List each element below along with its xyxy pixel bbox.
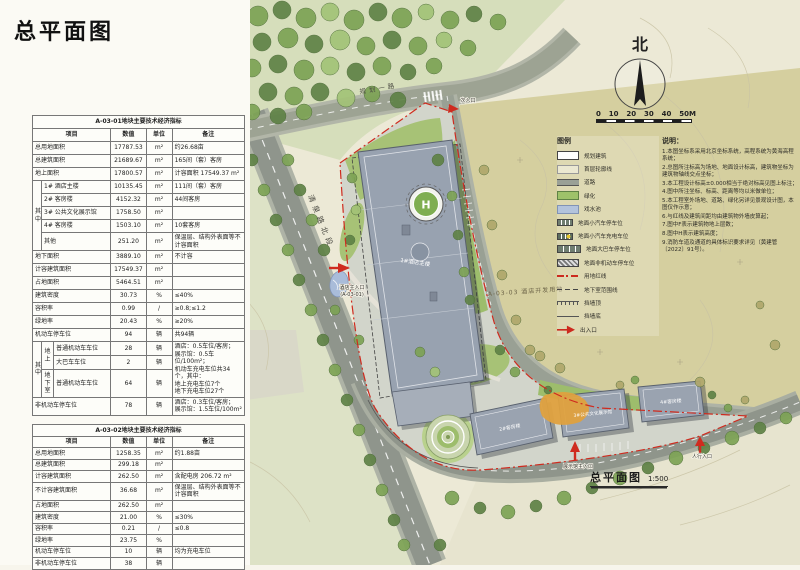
table-cell bbox=[172, 558, 244, 570]
table-cell: 非机动车停车位 bbox=[33, 558, 111, 570]
legend-title: 图例 bbox=[557, 136, 659, 146]
table-cell: 机动车停车位 bbox=[33, 546, 111, 558]
table-row: 机动车停车位94辆共94辆 bbox=[33, 329, 245, 342]
table-row: A-03-01地块主要技术经济指标 bbox=[33, 116, 245, 129]
column-header: 项目 bbox=[33, 436, 111, 448]
west-grey-patch bbox=[246, 330, 304, 400]
table-title: A-03-02地块主要技术经济指标 bbox=[33, 425, 245, 437]
table-cell: 28 bbox=[111, 342, 146, 356]
table-cell: 不计容建筑面积 bbox=[33, 482, 111, 500]
entrance-label-main: 酒店主入口 bbox=[339, 284, 364, 291]
table-cell: 普通机动车车位 bbox=[54, 370, 111, 398]
table-cell: 计容面积 17549.37 m² bbox=[172, 168, 244, 181]
scale-tick: 20 bbox=[626, 110, 636, 118]
table-cell: 262.50 bbox=[111, 471, 146, 483]
legend-swatch-outline bbox=[557, 165, 579, 174]
table-cell: 建筑密度 bbox=[33, 290, 111, 303]
table-cell: 约1.88亩 bbox=[172, 448, 244, 460]
table-cell: 辆 bbox=[146, 356, 172, 370]
legend-label: 首层轮廓线 bbox=[584, 165, 612, 173]
north-label: 北 bbox=[632, 35, 648, 54]
table-cell: 计容建筑面积 bbox=[33, 471, 111, 483]
table-cell: 78 bbox=[111, 397, 146, 415]
table-row: 建筑密度21.00%≤30% bbox=[33, 512, 245, 524]
column-header: 单位 bbox=[146, 129, 172, 142]
legend-item: 挡墙底 bbox=[557, 310, 659, 323]
entrance-label-side: 次入口 bbox=[460, 97, 475, 104]
legend-swatch-entry bbox=[557, 325, 575, 335]
entrance-label-ped: 人行入口 bbox=[692, 453, 712, 460]
helipad-mark: H bbox=[421, 199, 430, 212]
note-line: 6.与红线及建筑间距均由建筑物外墙皮算起； bbox=[662, 214, 798, 221]
note-line: 8.图中H表示建筑高度； bbox=[662, 231, 798, 238]
legend-label: 地面大巴车停车位 bbox=[586, 245, 631, 253]
table-cell: 251.20 bbox=[111, 233, 146, 251]
table-row: 4# 客房楼1503.10m²10套客房 bbox=[33, 220, 245, 233]
column-header: 数值 bbox=[111, 436, 146, 448]
table-cell: 酒店：0.5车位/客房； 展示馆：0.5车位/100m²； 机动车充电车位共34… bbox=[172, 342, 244, 398]
table-row: 容积率0.99/≥0.8;≤1.2 bbox=[33, 303, 245, 316]
table-row: 总用地面积17787.53m²约26.68亩 bbox=[33, 142, 245, 155]
table-cell: 大巴车车位 bbox=[54, 356, 111, 370]
table-cell: 辆 bbox=[146, 329, 172, 342]
table-cell: 绿地率 bbox=[33, 535, 111, 547]
table-cell: 容积率 bbox=[33, 303, 111, 316]
legend-label: 用地红线 bbox=[584, 272, 606, 280]
table-cell: m² bbox=[146, 459, 172, 471]
table-cell: 0.99 bbox=[111, 303, 146, 316]
legend-item: 首层轮廓线 bbox=[557, 162, 659, 175]
table-cell: 4# 客房楼 bbox=[42, 220, 111, 233]
legend-swatch-redline bbox=[557, 275, 579, 277]
table-cell: m² bbox=[146, 471, 172, 483]
legend-label: 地面非机动车停车位 bbox=[584, 259, 634, 267]
table-cell: 2 bbox=[111, 356, 146, 370]
table-cell: % bbox=[146, 290, 172, 303]
table-cell: ≤30% bbox=[172, 512, 244, 524]
table-cell: 辆 bbox=[146, 370, 172, 398]
table-cell: 其中 bbox=[33, 181, 42, 251]
legend-swatch-nonmotor bbox=[557, 259, 579, 267]
table-cell: 计容建筑面积 bbox=[33, 264, 111, 277]
table-row: 容积率0.21/≤0.8 bbox=[33, 523, 245, 535]
table-cell: 酒店：0.3车位/客房； 展示馆：1.5车位/100m² bbox=[172, 397, 244, 415]
table-cell: 其中 bbox=[33, 342, 42, 398]
legend-swatch-green bbox=[557, 191, 579, 200]
table-cell: m² bbox=[146, 251, 172, 264]
table-cell: m² bbox=[146, 168, 172, 181]
table-cell: 地下室 bbox=[42, 370, 54, 398]
legend-swatch-basement bbox=[557, 289, 579, 291]
legend-label: 地面小汽车充电车位 bbox=[578, 232, 628, 240]
note-line: 9.消防车道及通道的具体标识要求详见（黄建管〔2022〕91号）。 bbox=[662, 240, 798, 254]
scale-tick: 40 bbox=[662, 110, 672, 118]
table-cell: 10 bbox=[111, 546, 146, 558]
entrance-label-main-tag: (A-03-01) bbox=[340, 292, 364, 298]
table-row: A-03-02地块主要技术经济指标 bbox=[33, 425, 245, 437]
entrance-label-exhibit: 展示馆主入口 bbox=[563, 463, 593, 470]
table-cell: 总建筑面积 bbox=[33, 155, 111, 168]
table-cell bbox=[172, 207, 244, 220]
plan-title-block: 总平面图1:500 bbox=[590, 466, 668, 487]
table-cell: 21.00 bbox=[111, 512, 146, 524]
legend-swatch-charge bbox=[557, 233, 573, 240]
table-cell: 普通机动车车位 bbox=[54, 342, 111, 356]
table-row: 计容建筑面积17549.37m² bbox=[33, 264, 245, 277]
table-cell: 总用地面积 bbox=[33, 142, 111, 155]
table-row: 非机动车停车位78辆酒店：0.3车位/客房； 展示馆：1.5车位/100m² bbox=[33, 397, 245, 415]
table-cell: m² bbox=[146, 264, 172, 277]
legend-swatch-building bbox=[557, 151, 579, 160]
column-header: 单位 bbox=[146, 436, 172, 448]
table-cell: m² bbox=[146, 220, 172, 233]
note-line: 1.本图坐标系采用北京坐标系统，高程系统为黄海高程系统； bbox=[662, 149, 798, 163]
legend: 图例 规划建筑首层轮廓线道路绿化戏水池地面小汽车停车位地面小汽车充电车位地面大巴… bbox=[557, 136, 659, 336]
column-header: 备注 bbox=[172, 436, 244, 448]
notes-title: 说明： bbox=[662, 136, 798, 146]
legend-swatch-water bbox=[557, 205, 579, 214]
legend-swatch-wallbase bbox=[557, 316, 579, 317]
plan-title-text: 总平面图 bbox=[590, 471, 642, 484]
table-cell: 299.18 bbox=[111, 459, 146, 471]
table-cell: 共94辆 bbox=[172, 329, 244, 342]
table-cell: / bbox=[146, 523, 172, 535]
plan-scale-text: 1:500 bbox=[648, 475, 668, 483]
table-cell: 17800.57 bbox=[111, 168, 146, 181]
table-row: 非机动车停车位38辆 bbox=[33, 558, 245, 570]
note-line: 3.本工程设计标高±0.000相当于绝对标高见图上标注； bbox=[662, 181, 798, 188]
legend-item: 挡墙顶 bbox=[557, 296, 659, 309]
table-row: 3# 公共文化展示馆1758.50m² bbox=[33, 207, 245, 220]
table-row: 总建筑面积21689.67m²165间（套）客房 bbox=[33, 155, 245, 168]
table-row: 总用地面积1258.35m²约1.88亩 bbox=[33, 448, 245, 460]
table-row: 总建筑面积299.18m² bbox=[33, 459, 245, 471]
note-line: 7.图中F表示建筑物地上层数； bbox=[662, 222, 798, 229]
table-cell: 容积率 bbox=[33, 523, 111, 535]
table-title: A-03-01地块主要技术经济指标 bbox=[33, 116, 245, 129]
table-cell: 36.68 bbox=[111, 482, 146, 500]
table-cell: 绿地率 bbox=[33, 316, 111, 329]
table-cell: m² bbox=[146, 482, 172, 500]
table-cell: m² bbox=[146, 448, 172, 460]
table-cell bbox=[172, 535, 244, 547]
table-cell: 38 bbox=[111, 558, 146, 570]
table-cell: 4152.32 bbox=[111, 194, 146, 207]
table-cell: 30.73 bbox=[111, 290, 146, 303]
table-cell: 20.43 bbox=[111, 316, 146, 329]
note-line: 4.图中所注坐标、标高、距离等均以米做单位； bbox=[662, 189, 798, 196]
table-cell bbox=[172, 277, 244, 290]
legend-label: 道路 bbox=[584, 178, 595, 186]
scale-tick: 10 bbox=[609, 110, 619, 118]
table-row: 项目数值单位备注 bbox=[33, 129, 245, 142]
table-cell: 3889.10 bbox=[111, 251, 146, 264]
legend-label: 地下室范围线 bbox=[584, 286, 618, 294]
legend-swatch-park bbox=[557, 219, 573, 226]
table-row: 其他251.20m²保温层、结构外表面等不计容面积 bbox=[33, 233, 245, 251]
table-row: 项目数值单位备注 bbox=[33, 436, 245, 448]
scale-bar: 01020304050M bbox=[596, 110, 696, 123]
legend-item: 绿化 bbox=[557, 189, 659, 202]
table-cell: ≥20% bbox=[172, 316, 244, 329]
table-cell: m² bbox=[146, 142, 172, 155]
table-row: 机动车停车位10辆均为充电车位 bbox=[33, 546, 245, 558]
table-cell: 44间客房 bbox=[172, 194, 244, 207]
table-cell: 非机动车停车位 bbox=[33, 397, 111, 415]
legend-item: 地下室范围线 bbox=[557, 283, 659, 296]
scale-tick: 0 bbox=[596, 110, 601, 118]
table-cell: 地上面积 bbox=[33, 168, 111, 181]
table-cell: 165间（套）客房 bbox=[172, 155, 244, 168]
table-cell: / bbox=[146, 303, 172, 316]
table-cell: 保温层、结构外表面等不计容面积 bbox=[172, 233, 244, 251]
table-cell: ≤40% bbox=[172, 290, 244, 303]
table-row: 其中1# 酒店主楼10135.45m²111间（套）客房 bbox=[33, 181, 245, 194]
table-cell: 21689.67 bbox=[111, 155, 146, 168]
table-row: 占地面积262.50m² bbox=[33, 500, 245, 512]
legend-label: 挡墙顶 bbox=[584, 299, 601, 307]
table-row: 地下面积3889.10m²不计容 bbox=[33, 251, 245, 264]
legend-item: 出入口 bbox=[557, 323, 659, 336]
legend-label: 挡墙底 bbox=[584, 312, 601, 320]
table-cell: 占地面积 bbox=[33, 277, 111, 290]
legend-item: 地面小汽车停车位 bbox=[557, 216, 659, 229]
table-cell: 262.50 bbox=[111, 500, 146, 512]
table-cell: m² bbox=[146, 194, 172, 207]
table-cell: 地下面积 bbox=[33, 251, 111, 264]
note-line: 5.本工程室外场地、道路、绿化另详见景观设计图，本图仅作示意； bbox=[662, 198, 798, 212]
legend-label: 绿化 bbox=[584, 192, 595, 200]
page-title: 总平面图 bbox=[14, 14, 114, 46]
legend-label: 地面小汽车停车位 bbox=[578, 219, 623, 227]
table-cell: % bbox=[146, 512, 172, 524]
left-panel: 总平面图 A-03-01地块主要技术经济指标项目数值单位备注总用地面积17787… bbox=[0, 0, 250, 565]
table-cell: 辆 bbox=[146, 342, 172, 356]
table-cell: m² bbox=[146, 277, 172, 290]
table-cell: 保温层、结构外表面等不计容面积 bbox=[172, 482, 244, 500]
table-cell: 建筑密度 bbox=[33, 512, 111, 524]
indicator-table-a0301: A-03-01地块主要技术经济指标项目数值单位备注总用地面积17787.53m²… bbox=[32, 115, 245, 416]
legend-label: 戏水池 bbox=[584, 205, 601, 213]
legend-item: 地面非机动车停车位 bbox=[557, 256, 659, 269]
table-row: 2# 客房楼4152.32m²44间客房 bbox=[33, 194, 245, 207]
table-cell: m² bbox=[146, 500, 172, 512]
table-cell: 10135.45 bbox=[111, 181, 146, 194]
table-cell: 5464.51 bbox=[111, 277, 146, 290]
table-cell: 94 bbox=[111, 329, 146, 342]
table-cell: 1258.35 bbox=[111, 448, 146, 460]
table-cell: 1# 酒店主楼 bbox=[42, 181, 111, 194]
table-cell: % bbox=[146, 535, 172, 547]
table-cell: 约26.68亩 bbox=[172, 142, 244, 155]
table-cell: 含配电房 206.72 m² bbox=[172, 471, 244, 483]
table-cell: ≥0.8;≤1.2 bbox=[172, 303, 244, 316]
table-cell: 17787.53 bbox=[111, 142, 146, 155]
table-row: 地上面积17800.57m²计容面积 17549.37 m² bbox=[33, 168, 245, 181]
table-cell: 1758.50 bbox=[111, 207, 146, 220]
table-cell: 17549.37 bbox=[111, 264, 146, 277]
table-cell: 占地面积 bbox=[33, 500, 111, 512]
legend-swatch-bus bbox=[557, 245, 581, 253]
table-cell: 10套客房 bbox=[172, 220, 244, 233]
table-cell: 0.21 bbox=[111, 523, 146, 535]
indicator-table-a0302: A-03-02地块主要技术经济指标项目数值单位备注总用地面积1258.35m²约… bbox=[32, 424, 245, 570]
spiral-garden bbox=[426, 415, 470, 459]
table-cell: 111间（套）客房 bbox=[172, 181, 244, 194]
table-cell: 总建筑面积 bbox=[33, 459, 111, 471]
table-row: 计容建筑面积262.50m²含配电房 206.72 m² bbox=[33, 471, 245, 483]
plan-sheet: { "page": { "title": "总平面图" }, "table1":… bbox=[0, 0, 800, 565]
table-cell: 辆 bbox=[146, 546, 172, 558]
legend-label: 出入口 bbox=[580, 326, 597, 334]
legend-label: 规划建筑 bbox=[584, 152, 606, 160]
table-cell: 1503.10 bbox=[111, 220, 146, 233]
table-cell bbox=[172, 264, 244, 277]
table-cell: m² bbox=[146, 155, 172, 168]
scale-tick: 30 bbox=[644, 110, 654, 118]
note-line: 2.总图所注标高为场地、地面设计标高，建筑物坐标为建筑物轴线交点坐标； bbox=[662, 165, 798, 179]
legend-item: 用地红线 bbox=[557, 270, 659, 283]
table-cell: 3# 公共文化展示馆 bbox=[42, 207, 111, 220]
legend-item: 规划建筑 bbox=[557, 149, 659, 162]
table-cell: 总用地面积 bbox=[33, 448, 111, 460]
legend-item: 戏水池 bbox=[557, 203, 659, 216]
legend-swatch-road bbox=[557, 179, 579, 186]
table-row: 建筑密度30.73%≤40% bbox=[33, 290, 245, 303]
table-cell: 辆 bbox=[146, 397, 172, 415]
legend-item: 道路 bbox=[557, 176, 659, 189]
column-header: 备注 bbox=[172, 129, 244, 142]
column-header: 项目 bbox=[33, 129, 111, 142]
table-cell: 其他 bbox=[42, 233, 111, 251]
table-row: 占地面积5464.51m² bbox=[33, 277, 245, 290]
table-cell: m² bbox=[146, 181, 172, 194]
table-cell: 64 bbox=[111, 370, 146, 398]
table-cell: 机动车停车位 bbox=[33, 329, 111, 342]
table-cell: ≤0.8 bbox=[172, 523, 244, 535]
table-cell: m² bbox=[146, 233, 172, 251]
table-cell: m² bbox=[146, 207, 172, 220]
table-cell: 均为充电车位 bbox=[172, 546, 244, 558]
scale-strip bbox=[596, 119, 692, 123]
table-cell: 辆 bbox=[146, 558, 172, 570]
legend-item: 地面小汽车充电车位 bbox=[557, 229, 659, 242]
column-header: 数值 bbox=[111, 129, 146, 142]
table-row: 绿地率20.43%≥20% bbox=[33, 316, 245, 329]
table-cell: 2# 客房楼 bbox=[42, 194, 111, 207]
table-cell: % bbox=[146, 316, 172, 329]
table-row: 绿地率23.75% bbox=[33, 535, 245, 547]
table-cell: 23.75 bbox=[111, 535, 146, 547]
table-cell bbox=[172, 459, 244, 471]
legend-item: 地面大巴车停车位 bbox=[557, 243, 659, 256]
table-row: 不计容建筑面积36.68m²保温层、结构外表面等不计容面积 bbox=[33, 482, 245, 500]
scale-tick: 50M bbox=[679, 110, 696, 118]
table-cell: 地上 bbox=[42, 342, 54, 370]
notes: 说明： 1.本图坐标系采用北京坐标系统，高程系统为黄海高程系统；2.总图所注标高… bbox=[662, 136, 798, 255]
table-cell: 不计容 bbox=[172, 251, 244, 264]
table-cell bbox=[172, 500, 244, 512]
legend-swatch-walltop bbox=[557, 301, 579, 305]
table-row: 其中地上普通机动车车位28辆酒店：0.5车位/客房； 展示馆：0.5车位/100… bbox=[33, 342, 245, 356]
